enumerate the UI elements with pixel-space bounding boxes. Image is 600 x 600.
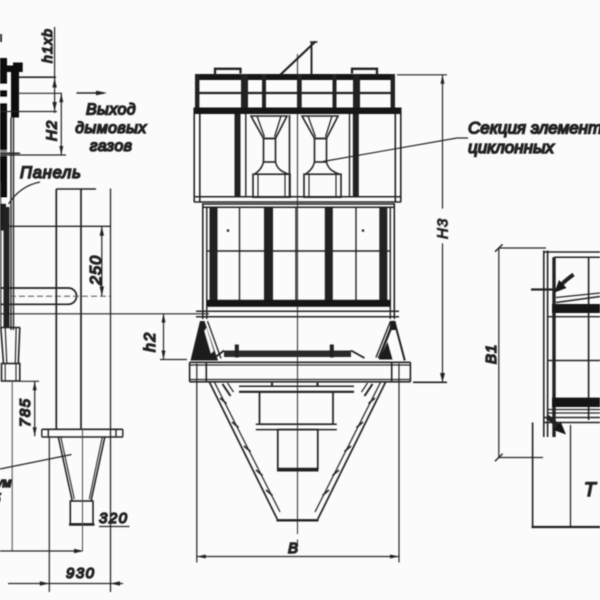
svg-text:циклонных: циклонных: [468, 138, 554, 157]
svg-text:h1хb: h1хb: [39, 28, 55, 63]
svg-text:Секция элементов: Секция элементов: [468, 119, 600, 138]
svg-text:ум: ум: [0, 475, 12, 490]
svg-text:Н2: Н2: [44, 120, 61, 141]
svg-text:Панель: Панель: [20, 164, 82, 182]
svg-text:дымовых: дымовых: [75, 120, 147, 137]
svg-text:б: б: [0, 491, 1, 506]
svg-text:газов: газов: [90, 138, 133, 155]
svg-text:h2: h2: [142, 331, 159, 352]
svg-text:250: 250: [88, 255, 105, 286]
svg-text:785: 785: [17, 397, 34, 427]
svg-text:320: 320: [99, 510, 129, 527]
svg-text:Выход: Выход: [86, 102, 136, 119]
svg-text:930: 930: [66, 565, 96, 582]
svg-text:В: В: [288, 540, 298, 557]
svg-text:Т: Т: [584, 480, 597, 501]
svg-text:В1: В1: [483, 344, 500, 364]
svg-text:Н3: Н3: [435, 218, 452, 239]
